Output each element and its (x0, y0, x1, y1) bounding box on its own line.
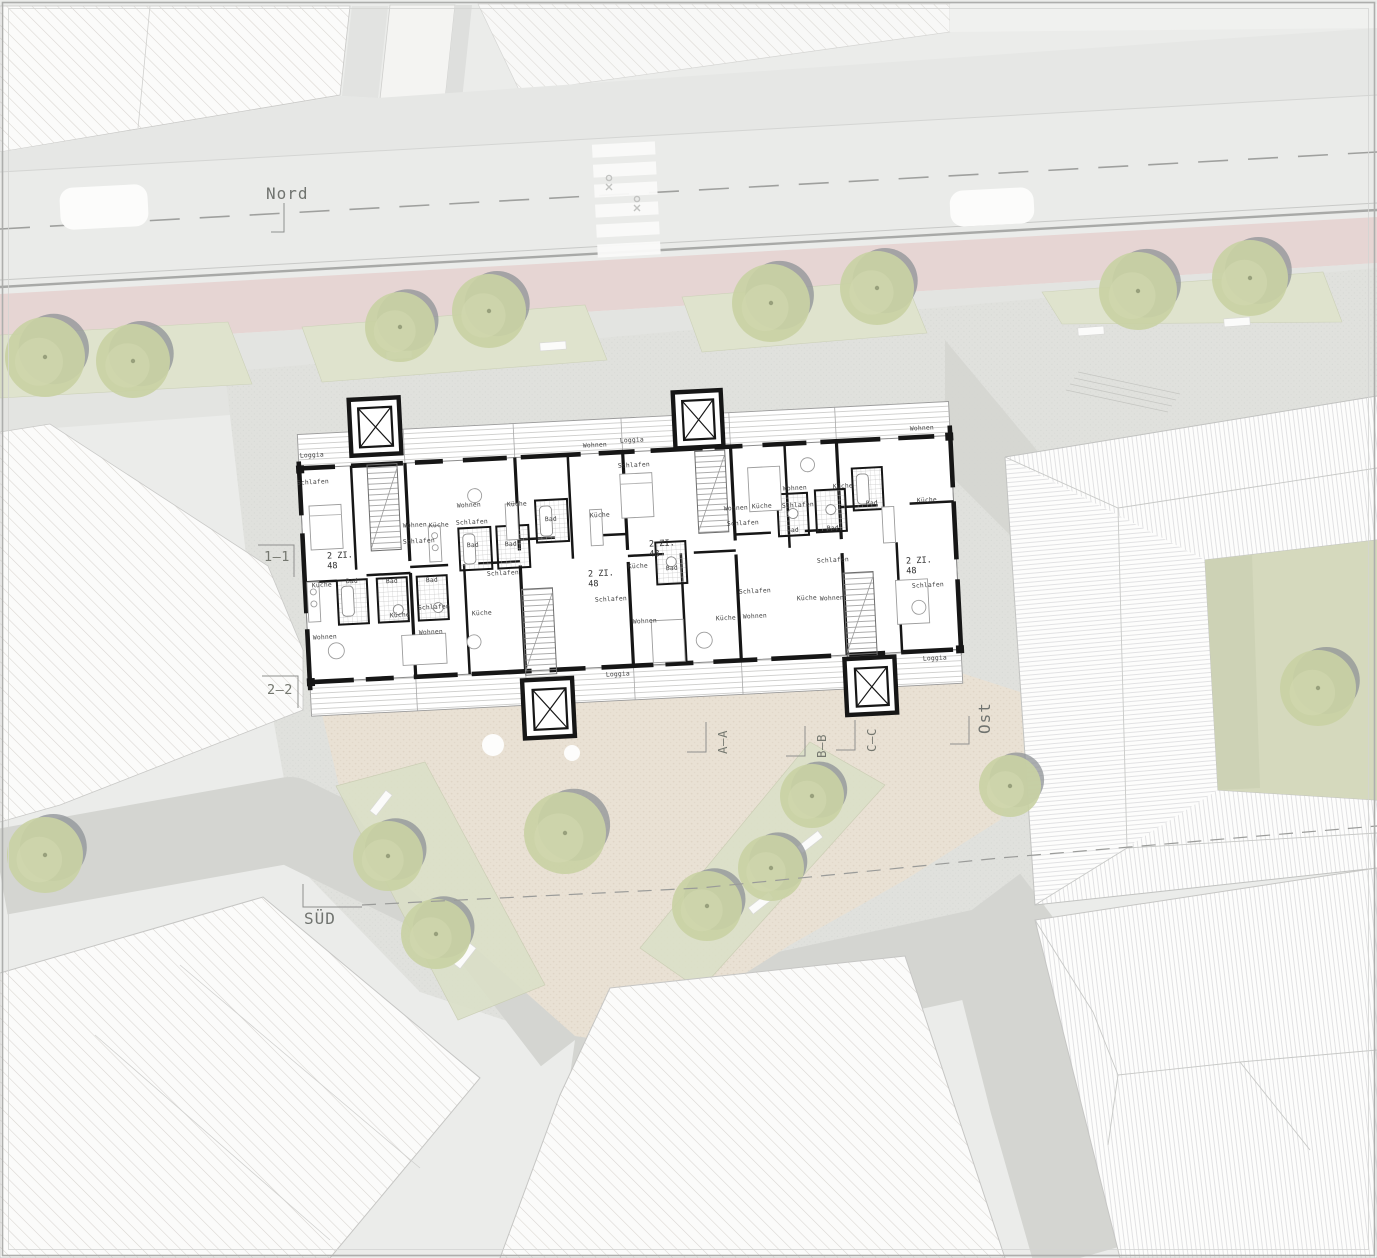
room-label: Loggia (606, 670, 630, 678)
room-label: Loggia (620, 436, 644, 444)
room-label: Küche (472, 610, 492, 618)
bench-icon (1224, 317, 1250, 327)
svg-text:A–A: A–A (715, 730, 730, 754)
svg-text:2 ZI.: 2 ZI. (906, 555, 932, 566)
svg-text:48: 48 (906, 566, 917, 577)
room-label: Wohnen (783, 484, 807, 492)
svg-text:48: 48 (588, 579, 599, 590)
room-label: Wohnen (724, 504, 748, 512)
room-label: Bad (505, 541, 517, 549)
bench-icon (1078, 326, 1104, 336)
svg-text:1–1: 1–1 (264, 549, 290, 565)
room-label: Küche (716, 615, 736, 623)
plaza-lamp-icon (564, 745, 580, 761)
svg-text:48: 48 (327, 561, 338, 572)
svg-text:C–C: C–C (864, 728, 879, 752)
svg-text:Ost: Ost (975, 702, 994, 734)
room-label: Küche (797, 595, 817, 603)
room-label: Wohnen (633, 617, 657, 625)
room-label: Bad (666, 565, 678, 573)
svg-text:2–2: 2–2 (267, 682, 293, 698)
architectural-site-plan: LoggiaSchlafenKücheWohnenWohnenKücheSchl… (0, 0, 1377, 1258)
svg-text:2 ZI.: 2 ZI. (649, 538, 675, 549)
room-label: Loggia (923, 654, 947, 662)
room-label: Bad (426, 577, 438, 585)
room-label: Wohnen (313, 633, 337, 641)
svg-text:48: 48 (649, 549, 660, 560)
room-label: Wohnen (820, 594, 844, 602)
room-label: Küche (429, 522, 449, 530)
room-label: Bad (386, 578, 398, 586)
room-label: Wohnen (403, 521, 427, 529)
room-label: Wohnen (419, 628, 443, 636)
car-icon (59, 184, 149, 231)
svg-text:2 ZI.: 2 ZI. (327, 550, 353, 561)
room-label: Bad (827, 525, 839, 533)
room-label: Bad (787, 527, 799, 535)
room-label: Bad (545, 516, 557, 524)
room-label: Küche (752, 503, 772, 511)
room-label: Bad (346, 578, 358, 586)
building-floor-plan (293, 369, 968, 749)
room-label: Küche (917, 497, 937, 505)
svg-text:Nord: Nord (266, 184, 309, 203)
room-label: Küche (507, 501, 527, 509)
svg-text:B–B: B–B (814, 734, 829, 758)
room-label: Küche (390, 612, 410, 620)
room-label: Küche (628, 563, 648, 571)
room-label: Küche (590, 512, 610, 520)
svg-text:SÜD: SÜD (304, 909, 336, 928)
site-plan-canvas: LoggiaSchlafenKücheWohnenWohnenKücheSchl… (0, 0, 1377, 1258)
room-label: Küche (833, 483, 853, 491)
bench-icon (540, 341, 566, 351)
svg-text:2 ZI.: 2 ZI. (588, 568, 614, 579)
room-label: Küche (312, 582, 332, 590)
room-label: Loggia (300, 451, 324, 459)
car-icon (949, 187, 1035, 227)
room-label: Wohnen (743, 612, 767, 620)
room-label: Wohnen (583, 441, 607, 449)
room-label: Wohnen (910, 424, 934, 432)
room-label: Wohnen (457, 501, 481, 509)
plaza-lamp-icon (482, 734, 504, 756)
room-label: Bad (467, 542, 479, 550)
room-label: Bad (866, 500, 878, 508)
